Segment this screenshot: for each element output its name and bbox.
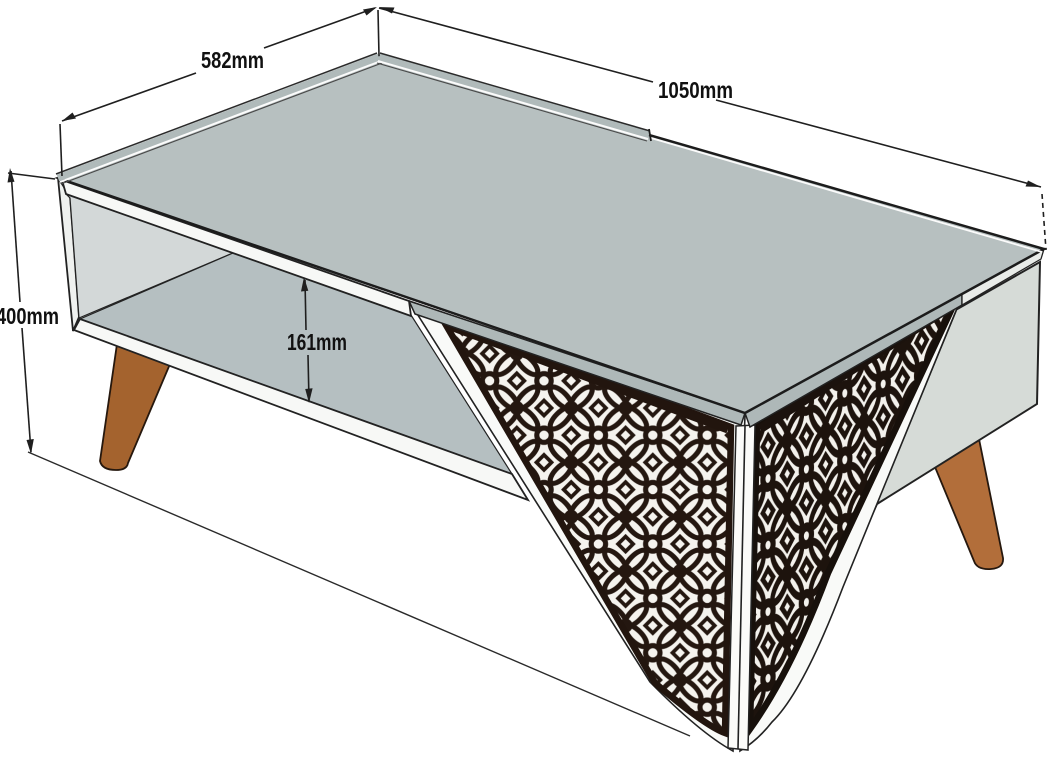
svg-text:1050mm: 1050mm bbox=[658, 77, 733, 103]
svg-text:582mm: 582mm bbox=[201, 47, 264, 73]
svg-text:400mm: 400mm bbox=[0, 303, 59, 329]
svg-text:161mm: 161mm bbox=[287, 329, 347, 355]
